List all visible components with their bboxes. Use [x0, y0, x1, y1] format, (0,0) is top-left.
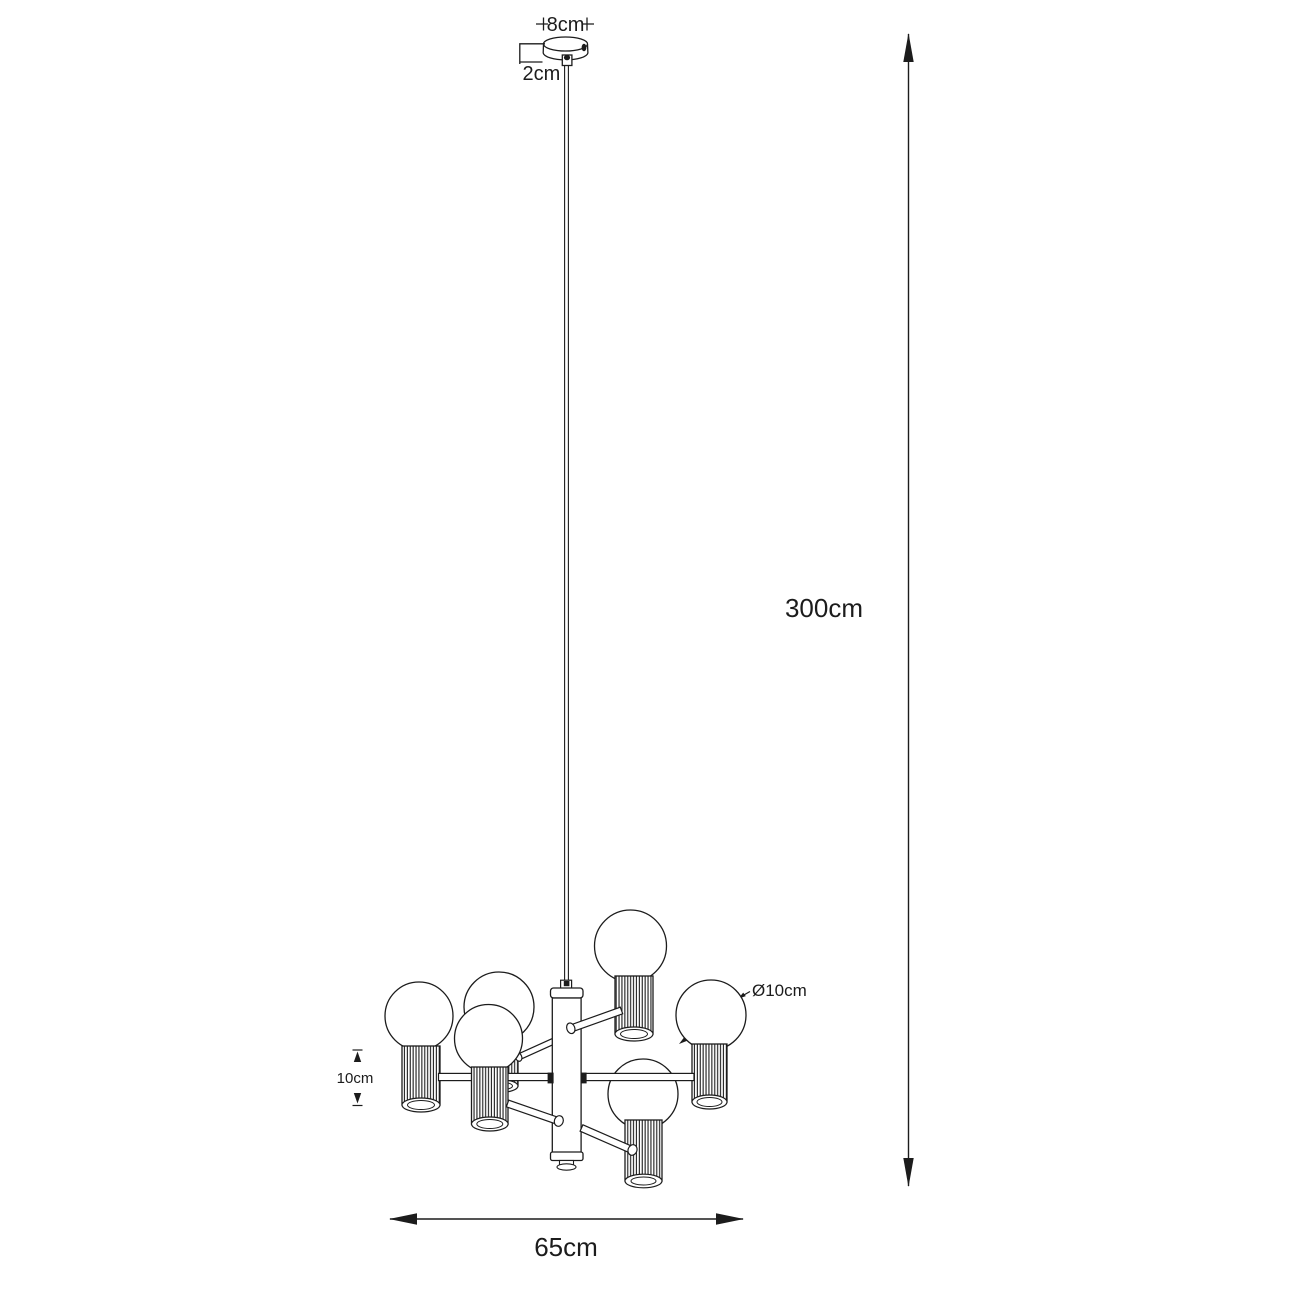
bulb — [455, 1005, 523, 1073]
column-finial-disc — [557, 1164, 576, 1170]
suspension-cord — [565, 65, 569, 981]
arm-socket-left — [548, 1073, 554, 1084]
arm-socket-right — [581, 1073, 587, 1084]
ceiling-canopy — [543, 37, 588, 66]
center-column — [551, 980, 584, 1170]
lamp-right — [676, 980, 746, 1109]
lamp-far-left — [385, 982, 453, 1112]
shade-height-label: 10cm — [337, 1070, 374, 1087]
canopy-height-label: 2cm — [523, 63, 561, 85]
shade — [402, 1046, 440, 1105]
arrow-down-small — [354, 1093, 361, 1104]
column-body — [552, 998, 581, 1153]
arrow-right — [716, 1213, 744, 1224]
bulb — [385, 982, 453, 1050]
dim-canopy-width: 8cm — [536, 14, 594, 36]
shade — [692, 1044, 727, 1102]
canopy-screw — [582, 44, 587, 52]
arrow-up-small — [354, 1052, 361, 1063]
bulb — [595, 910, 667, 982]
bulb — [676, 980, 746, 1050]
cord-connector-screw — [564, 981, 570, 986]
lamp-top — [595, 910, 667, 1041]
column-bottom-cap — [551, 1152, 584, 1161]
bulb-diameter-label: Ø10cm — [752, 981, 807, 1000]
arm-right — [578, 1073, 694, 1080]
cord-grip-screw — [564, 55, 570, 60]
column-top-cap — [551, 988, 584, 998]
chandelier-dimension-drawing: 8cm 2cm 300cm 65cm 10cm Ø10cm — [0, 0, 1300, 1300]
drawing-canvas: 8cm 2cm 300cm 65cm 10cm Ø10cm — [0, 0, 1300, 1300]
dim-shade-height: 10cm — [337, 1050, 374, 1106]
drop-height-label: 300cm — [785, 593, 863, 623]
canopy-top — [544, 37, 588, 51]
shade — [615, 976, 653, 1034]
lamp-bottom-bulb — [608, 1059, 678, 1129]
arrow-left — [389, 1213, 417, 1224]
arrow-down — [903, 1158, 913, 1187]
dim-drop-height: 300cm — [785, 33, 914, 1187]
arrow-up — [903, 33, 913, 62]
canopy-width-label: 8cm — [547, 14, 585, 36]
shade — [472, 1067, 509, 1124]
fixture-width-label: 65cm — [534, 1232, 598, 1262]
dim-fixture-width: 65cm — [389, 1213, 744, 1262]
